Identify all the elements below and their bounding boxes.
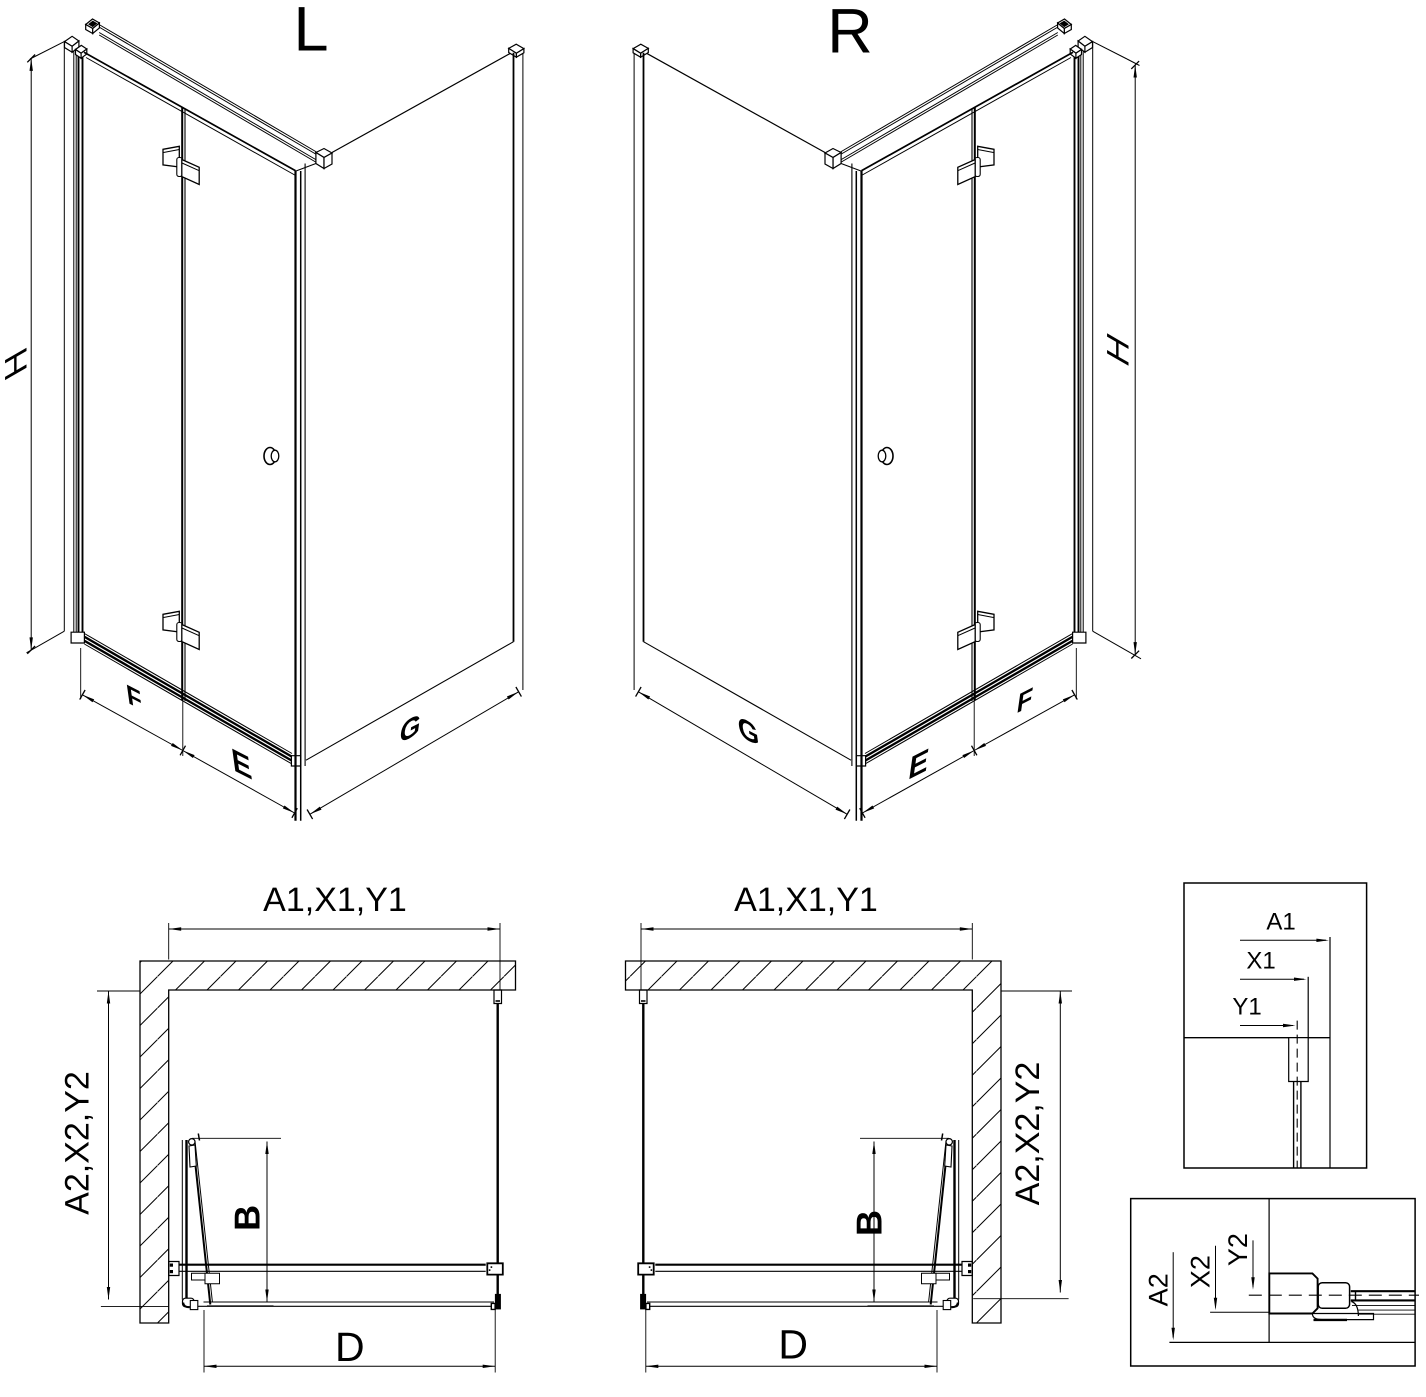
svg-text:A1,X1,Y1: A1,X1,Y1: [263, 881, 407, 919]
svg-text:A2,X2,Y2: A2,X2,Y2: [1009, 1062, 1047, 1206]
svg-text:B: B: [849, 1210, 890, 1236]
svg-text:B: B: [226, 1205, 267, 1231]
svg-text:Y2: Y2: [1223, 1233, 1253, 1266]
svg-text:A2: A2: [1144, 1273, 1174, 1306]
svg-text:Y1: Y1: [1232, 994, 1261, 1021]
svg-text:L: L: [293, 0, 328, 65]
svg-text:X1: X1: [1246, 948, 1275, 975]
svg-text:D: D: [778, 1322, 808, 1368]
svg-text:R: R: [827, 0, 873, 67]
svg-text:A2,X2,Y2: A2,X2,Y2: [59, 1071, 97, 1215]
svg-text:D: D: [335, 1324, 365, 1370]
svg-text:X2: X2: [1186, 1255, 1216, 1288]
svg-text:A1: A1: [1266, 909, 1295, 936]
svg-text:A1,X1,Y1: A1,X1,Y1: [734, 881, 878, 919]
